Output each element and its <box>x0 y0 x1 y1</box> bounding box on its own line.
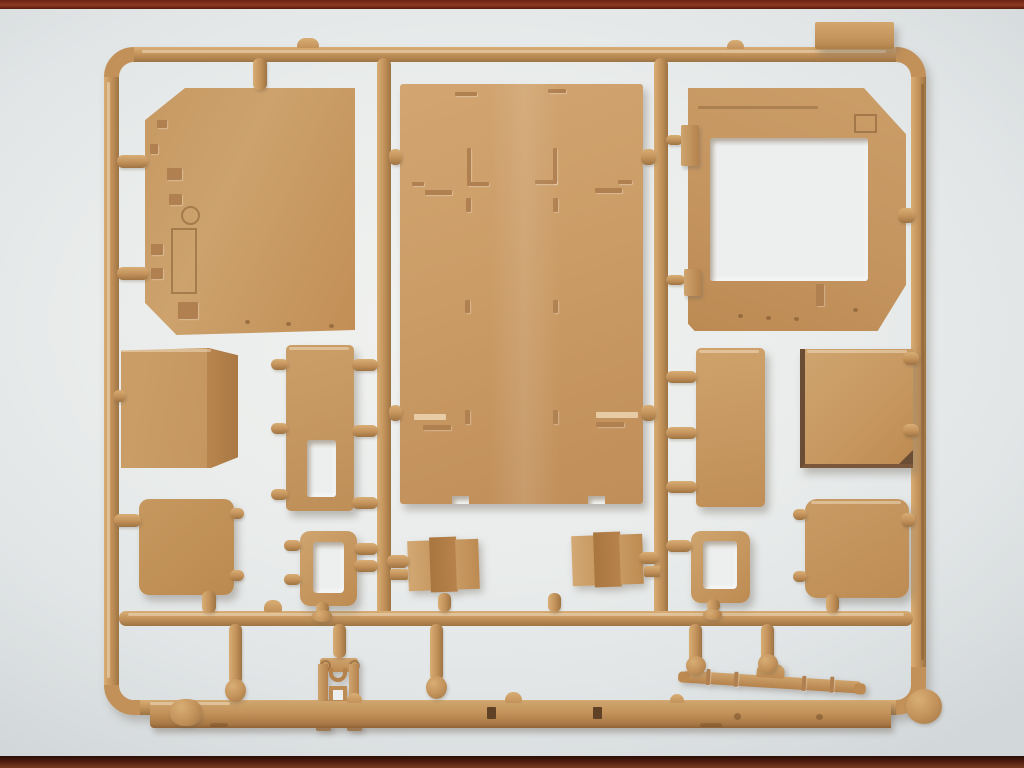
gate-stub <box>438 593 451 612</box>
gate-stub <box>666 427 697 439</box>
gate-stub <box>641 149 656 165</box>
rib-detail <box>465 410 470 424</box>
rivet-dot <box>738 314 743 318</box>
sill-step <box>700 723 722 727</box>
gate-stub <box>114 514 141 527</box>
gate-stub <box>117 267 149 280</box>
gate-ball <box>225 679 246 702</box>
panel-detail <box>151 268 163 279</box>
hinge-detail <box>854 114 877 133</box>
panel-detail <box>157 120 167 128</box>
panel-seam <box>698 106 818 109</box>
gate-stub <box>271 489 288 500</box>
rib-detail <box>465 300 470 313</box>
gate-remnant-bump <box>347 693 362 703</box>
part-stowage-box-right <box>800 349 913 468</box>
part-side-sill-strip <box>150 701 891 728</box>
rivet-dot <box>766 316 771 320</box>
window-opening <box>710 138 868 281</box>
gate-stub <box>666 481 697 493</box>
gate-stub <box>430 624 443 681</box>
gate-stub <box>898 208 915 223</box>
gate-ball <box>703 609 722 620</box>
flap-facet <box>407 540 432 591</box>
panel-highlight <box>811 501 901 504</box>
gate-stub <box>390 569 408 580</box>
sill-slot <box>487 707 496 719</box>
sprue-label-tab <box>815 22 894 49</box>
gate-stub <box>253 58 267 90</box>
table-edge-top <box>0 0 1024 9</box>
part-door-panel-plain <box>696 348 765 507</box>
gate-ball <box>758 654 778 673</box>
gate-stub <box>354 560 378 572</box>
part-mud-flap-right <box>571 531 644 588</box>
rivet-dot <box>853 308 858 312</box>
spring-end-mount <box>678 671 691 683</box>
panel-detail <box>151 244 163 255</box>
part-hull-side-panel <box>145 88 355 335</box>
flap-facet <box>593 532 622 588</box>
panel-detail <box>169 194 182 205</box>
gate-ball <box>426 676 447 699</box>
box-side-face <box>207 348 238 468</box>
rivet-dot <box>245 320 250 324</box>
runner-shade <box>921 84 924 660</box>
rivet-dot <box>329 324 334 328</box>
sill-rivet <box>734 713 741 720</box>
part-cab-rear-panel <box>688 88 906 331</box>
gate-stub <box>389 405 402 421</box>
part-stowage-box <box>121 348 238 468</box>
rib-detail <box>596 422 624 427</box>
runner-highlight <box>107 82 110 678</box>
gate-stub <box>113 390 126 402</box>
rib-detail <box>455 92 477 96</box>
gate-ball <box>686 656 706 675</box>
part-door-panel-slotted <box>286 345 354 511</box>
gate-remnant-bump <box>264 600 282 612</box>
gate-stub <box>354 543 378 555</box>
runner-corner-knob <box>906 689 942 724</box>
part-mud-flap-left <box>407 536 480 593</box>
runner-highlight <box>142 50 886 53</box>
frame-opening <box>703 541 737 589</box>
small-bracket-part <box>681 125 699 166</box>
weld-strip-detail <box>596 412 638 418</box>
gate-stub <box>284 540 301 551</box>
panel-detail <box>178 302 198 319</box>
sprue-runner-inner-left <box>377 58 391 618</box>
leaf-spring-bar <box>682 671 862 694</box>
rib-detail <box>466 198 471 212</box>
weld-strip-detail <box>414 414 446 420</box>
gate-stub <box>548 593 561 612</box>
part-hatch-panel-lower-right <box>805 499 909 598</box>
axle-tick <box>829 677 834 693</box>
sill-step <box>210 723 228 727</box>
gate-stub <box>202 591 216 613</box>
gate-stub <box>901 513 915 527</box>
flap-facet <box>571 535 596 586</box>
gate-stub <box>387 555 409 568</box>
gate-stub <box>333 624 346 658</box>
spring-end-mount <box>853 683 866 695</box>
gate-stub <box>793 571 807 582</box>
door-highlight <box>289 347 349 350</box>
gate-remnant-bump <box>727 40 744 49</box>
small-bracket-part <box>684 269 701 296</box>
gate-stub <box>903 424 919 437</box>
part-roof-floor-panel <box>400 84 643 504</box>
fuel-cap-detail <box>181 206 200 225</box>
gate-stub <box>903 352 919 365</box>
flap-facet <box>429 537 458 593</box>
gate-remnant-bump <box>297 38 319 48</box>
gate-stub <box>117 155 148 168</box>
edge-notch <box>588 496 605 504</box>
gate-stub <box>639 552 659 564</box>
gate-stub <box>229 624 242 684</box>
flap-facet <box>455 539 480 590</box>
rivet-dot <box>286 322 291 326</box>
axle-tick <box>734 672 739 687</box>
vision-slot <box>307 440 336 497</box>
gate-stub <box>826 594 839 613</box>
photo-of-model-kit-sprue <box>0 0 1024 768</box>
axle-tick <box>706 669 711 685</box>
gate-stub <box>641 405 656 421</box>
box-corner-shade <box>899 450 913 464</box>
rib-detail <box>595 188 622 193</box>
gate-stub <box>271 423 288 434</box>
runner-highlight <box>128 613 904 616</box>
gate-stub <box>666 371 697 383</box>
axle-tick <box>802 676 807 691</box>
gate-stub <box>284 574 301 585</box>
edge-notch <box>452 496 469 504</box>
gate-stub <box>389 149 402 165</box>
bracket-u-clamp <box>329 668 347 682</box>
frame-opening <box>313 542 344 593</box>
part-window-frame-left <box>300 531 357 606</box>
gate-stub <box>644 566 660 577</box>
panel-detail <box>150 144 158 154</box>
gate-remnant-bump <box>505 692 522 703</box>
sill-slot <box>593 707 602 719</box>
gate-stub <box>666 275 685 285</box>
runner-corner-knob <box>170 699 202 726</box>
sheen <box>490 84 560 504</box>
door-highlight <box>699 350 759 353</box>
gate-stub <box>352 497 378 509</box>
rib-detail <box>618 180 632 184</box>
rib-detail <box>425 190 452 195</box>
rib-detail <box>467 182 489 186</box>
gate-stub <box>271 359 288 370</box>
gate-remnant-bump <box>670 694 684 703</box>
table-edge-bottom <box>0 756 1024 768</box>
gate-stub <box>666 540 692 552</box>
part-window-frame-right <box>691 531 750 603</box>
hatch-outline-detail <box>171 228 197 294</box>
gate-stub <box>230 570 244 581</box>
box-top-highlight <box>807 350 907 353</box>
gate-ball <box>312 610 332 622</box>
gate-stub <box>793 509 807 520</box>
rib-detail <box>412 182 424 186</box>
gate-stub <box>352 425 378 437</box>
part-hatch-panel-lower-left <box>139 499 234 595</box>
sill-rivet <box>816 714 823 720</box>
rivet-dot <box>794 317 799 321</box>
panel-detail <box>816 284 824 306</box>
rib-detail <box>467 148 471 184</box>
gate-stub <box>230 508 244 519</box>
panel-detail <box>167 168 182 180</box>
rib-detail <box>423 425 451 430</box>
gate-stub <box>352 359 378 371</box>
